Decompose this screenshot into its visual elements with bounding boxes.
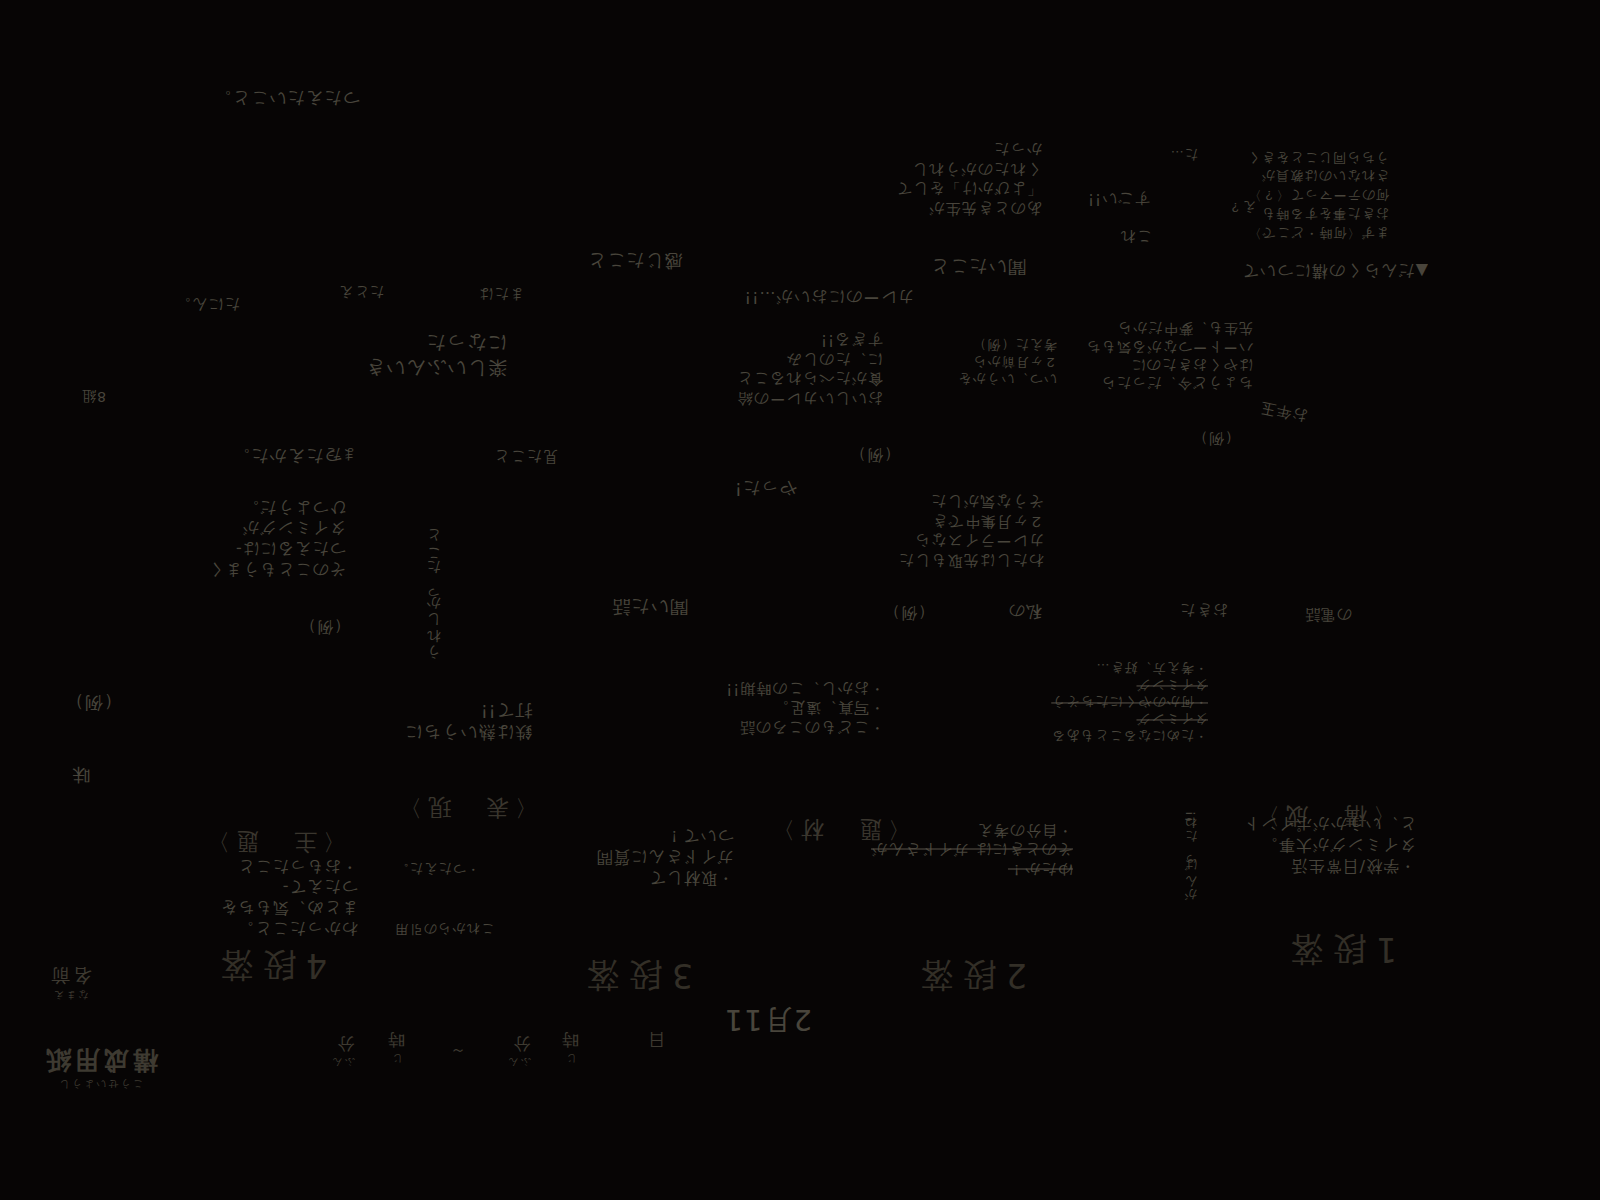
cloud-top-mid-caption: 感じたこと: [538, 250, 683, 273]
list-box-text: ・こどものころの話 ・写真、遠足。 ・おかし、この時期!!: [693, 678, 885, 737]
mid-cloud-rei: （例）: [874, 602, 934, 623]
crossed-box-text: ・ためになることもある タイミング ・何かのやくにたちそう タイミング ・考え方…: [1040, 660, 1208, 744]
sheet-title: こうせいようし 構成用紙: [42, 1044, 158, 1091]
form-day: 日: [648, 1028, 665, 1051]
form-name-label: なまえ 名前: [48, 962, 92, 1002]
daizai-bottom-box-text: ゆたか！ そのときには ガイドさんが ・自分の考え: [845, 820, 1073, 879]
note-mataha: または: [432, 286, 524, 304]
wish-box-text: ちょうど今、だったら はやくおきたのに ハートーつながる気もち 先生も、夢中だか…: [1038, 320, 1253, 393]
form-ji-2: じ 時: [562, 1028, 579, 1065]
cloud2-text: 楽しいふんいき になった: [322, 332, 507, 381]
handwritten-date: 2月11: [682, 1000, 812, 1038]
form-ji-1: じ 時: [388, 1028, 405, 1065]
banner-text: やった!: [702, 478, 797, 500]
section-1-label: 1段落: [1212, 926, 1397, 971]
photo-of-worksheet: つたえたいこと。 たにん。 8組 つたえかた。 そのこともうまく つたえるには-…: [0, 0, 1600, 1200]
circled-ta: た…: [1146, 146, 1198, 163]
section-4-label: 4段落: [142, 942, 327, 987]
card-text: お年玉: [1243, 394, 1310, 426]
okita-caption: おきた: [1148, 600, 1228, 620]
circled-e: え？: [1212, 198, 1256, 215]
margin-rei: （例）: [46, 692, 122, 715]
wish-rei: （例）: [1180, 428, 1240, 448]
side-note-a: ・つたえた。: [390, 860, 480, 877]
clip-and-shadow-art: [0, 0, 1600, 1200]
vertical-note: うれしかったこと: [424, 470, 442, 670]
margin-note-tanin: たにん。: [140, 294, 240, 314]
category-shudai: 〈主 題〉: [176, 826, 346, 857]
margin-aji: 味: [46, 764, 90, 787]
cloud3-text: あのとき先生が 「よびかけ」をして くれたのがうれし かった: [872, 140, 1042, 218]
iron-box-text: 鉄は熱いうちに 打て!!: [352, 700, 532, 744]
form-fun-2: ふん 分: [506, 1032, 530, 1069]
curry-rei: （例）: [840, 444, 900, 465]
mid-cloud-text: わたしは先取もした カレーライスなら ２ヶ月集中でき そうな気がした: [866, 492, 1044, 570]
curry-box-text: おいしいカレーの給 食がたべられること に、たのしみ すぎる!!: [708, 330, 883, 408]
kosei-bottom-box-text: ・学校/日常生活 タイミングが大事。 と、いうかがポイント: [1204, 814, 1416, 876]
denwa-caption: の電話: [1262, 604, 1352, 624]
section-2-label: 2段落: [842, 952, 1027, 997]
cloud1-caption: つたえたいこと。: [160, 88, 360, 110]
category-hyogen: 〈表 現〉: [388, 792, 538, 823]
category-kosei: 〈構 成〉: [1246, 800, 1396, 831]
hyogen-bottom-box-text: ・取材して ガイドさんに質問 ついて！: [502, 826, 734, 888]
how-box-rei: （例）: [288, 616, 350, 637]
cloud3-caption: 聞いたこと: [886, 256, 1026, 279]
margin-note-kumi: 8組: [26, 388, 106, 406]
side-note-timing: いつ、いうかを ２ヶ月前から 考えた（例）: [942, 336, 1057, 387]
side-note-b: これからの引用: [382, 920, 494, 937]
kosei-notes-box-text: まず〈何時・どこで〉 おきた事をする時も 何のテーマって〈？〉 されないのは教員…: [1214, 148, 1389, 242]
note-tatoe: たとえ: [306, 284, 384, 302]
danraku-heading: ▲だんらくの構について: [1160, 260, 1428, 281]
section-3-label: 3段落: [508, 952, 693, 997]
empty-box-caption: 聞いた話: [528, 596, 688, 619]
shudai-bottom-box-text: わかったこと。 まとめ、気もちを つたえて- ・おもったこと: [148, 856, 358, 939]
form-fun-1: ふん 分: [330, 1032, 354, 1069]
note-sugoi: すごい!!: [1030, 188, 1150, 208]
watashino-label: 私の: [970, 600, 1042, 621]
paper-and-pencil-art: [0, 0, 1600, 1200]
brace-note: がんばったね!!: [1184, 802, 1200, 910]
note-mata: また: [296, 446, 356, 464]
curry-note: カレーのにおいが…!!: [656, 286, 914, 307]
form-tilde: ～: [450, 1040, 466, 1061]
how-box-text: そのこともうまく つたえるには- タイミングが ひつようだ。: [152, 497, 346, 580]
category-daizai: 〈題 材〉: [756, 814, 911, 845]
how-caption: つたえかた。: [222, 446, 342, 468]
note-mitakoto: 見たこと: [440, 446, 558, 466]
note-kore: これ: [1086, 226, 1152, 246]
